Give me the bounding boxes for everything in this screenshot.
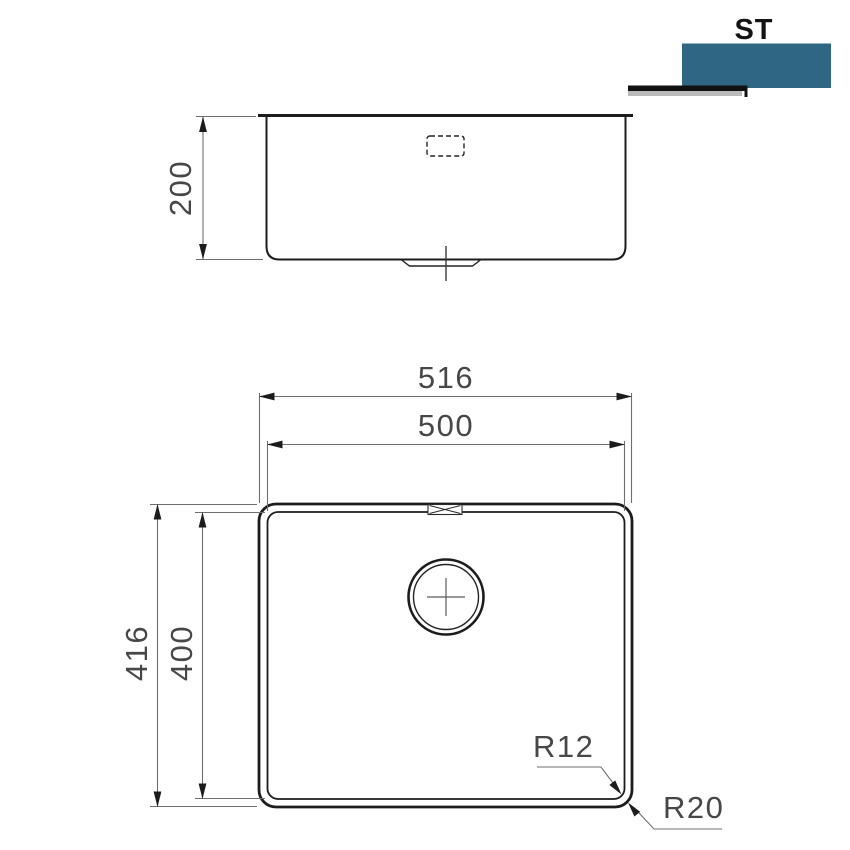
arrowhead-down: [154, 792, 162, 808]
overflow-marker: [428, 505, 462, 515]
dimension-200: 200: [163, 117, 263, 260]
drain: [409, 560, 484, 635]
sink-dimension-drawing: ST 200: [0, 0, 850, 850]
arrowhead-left: [259, 393, 275, 401]
dim-label-416: 416: [119, 625, 154, 681]
arrowhead-up: [154, 504, 162, 520]
side-view-overflow-dashed: [427, 136, 464, 156]
arrowhead-up: [199, 512, 207, 528]
arrowhead-up: [199, 117, 207, 133]
arrowhead-down: [199, 244, 207, 260]
logo-text: ST: [734, 14, 773, 46]
side-view-bowl-outline: [267, 116, 626, 260]
leader-arrowhead: [609, 780, 621, 794]
dimension-400: 400: [164, 512, 265, 799]
top-view: 516 500 416: [119, 360, 724, 829]
radius-label-r12: R12: [533, 729, 594, 764]
brand-logo: ST: [628, 14, 831, 97]
dim-label-516: 516: [418, 360, 474, 395]
dim-label-200: 200: [163, 160, 198, 216]
technical-drawing-svg: ST 200: [0, 0, 850, 850]
arrowhead-right: [617, 393, 633, 401]
dimension-500: 500: [267, 408, 625, 511]
dim-label-400: 400: [164, 625, 199, 681]
radius-label-r20: R20: [663, 790, 724, 825]
leader-line: [537, 767, 613, 783]
arrowhead-down: [199, 784, 207, 800]
arrowhead-right: [610, 441, 626, 449]
leader-arrowhead: [628, 803, 640, 817]
logo-accent-block: [682, 44, 831, 89]
dim-label-500: 500: [418, 408, 474, 443]
side-view: 200: [163, 116, 633, 282]
logo-underline-shadow: [628, 91, 742, 96]
arrowhead-left: [267, 441, 283, 449]
radius-callout-r20: R20: [628, 790, 724, 829]
radius-callout-r12: R12: [533, 729, 622, 795]
